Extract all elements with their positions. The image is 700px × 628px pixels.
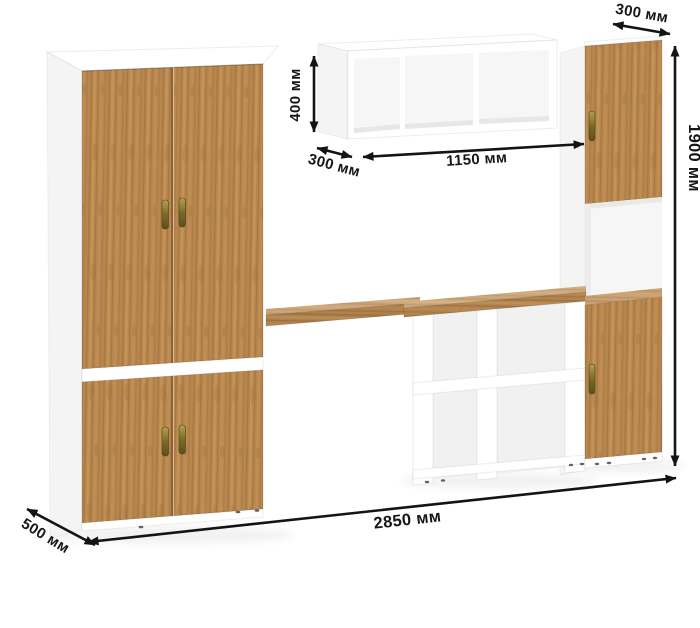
dim-shelf-depth-label: 300 мм (306, 151, 362, 181)
furniture-dimension-diagram: 300 мм 1900 мм 400 мм 300 мм 1150 мм 285… (0, 0, 700, 628)
door-handle (179, 425, 186, 454)
desk-board-left (266, 297, 420, 326)
dim-top-depth-label: 300 мм (614, 1, 669, 27)
shelf-side-face (318, 44, 348, 139)
cube-shelf-unit (413, 301, 585, 485)
cube-upright-left (413, 314, 433, 485)
door-handle (162, 427, 169, 456)
door-handle (162, 200, 169, 229)
dim-total-height-label: 1900 мм (685, 124, 700, 192)
wardrobe-side-face (47, 52, 82, 539)
cube-upright-middle (477, 308, 497, 480)
right-cabinet-lower (585, 288, 662, 468)
door-handle (589, 111, 595, 141)
shelf-compartments (354, 50, 549, 133)
door-handle (179, 198, 186, 227)
door-handle (589, 364, 595, 394)
dim-shelf-height-label: 400 мм (287, 68, 304, 121)
dim-shelf-width-label: 1150 мм (446, 149, 508, 170)
cabinet-bottom-door (585, 297, 662, 459)
left-wardrobe (47, 46, 278, 539)
cabinet-top-door (585, 40, 662, 204)
cabinet-open-cube (585, 197, 662, 296)
cube-upright-right (565, 301, 585, 473)
scene-canvas: 300 мм 1900 мм 400 мм 300 мм 1150 мм 285… (0, 0, 700, 628)
wall-shelf (318, 34, 557, 139)
